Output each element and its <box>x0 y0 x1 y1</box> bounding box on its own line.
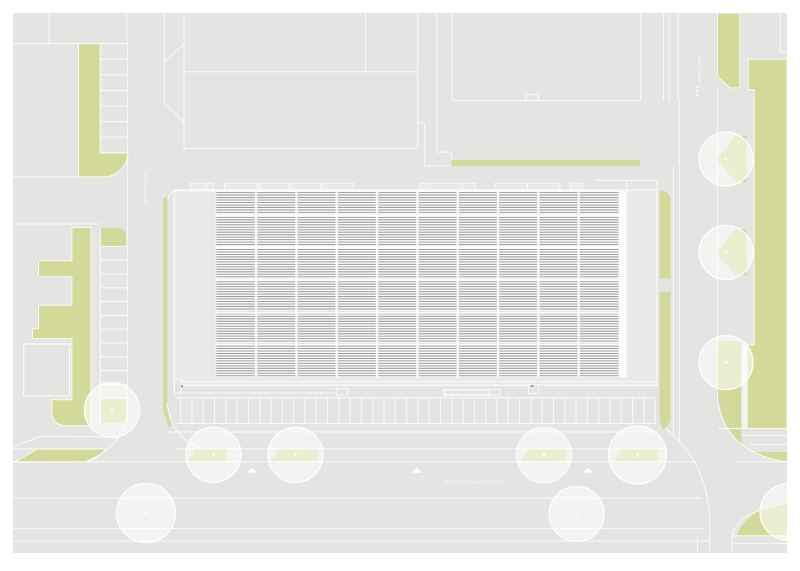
svg-text:Noorderringweg Noord: Noorderringweg Noord <box>444 480 502 486</box>
svg-text:Nolfsenweg: Nolfsenweg <box>142 170 148 204</box>
svg-text:Marconiweg: Marconiweg <box>696 57 702 88</box>
